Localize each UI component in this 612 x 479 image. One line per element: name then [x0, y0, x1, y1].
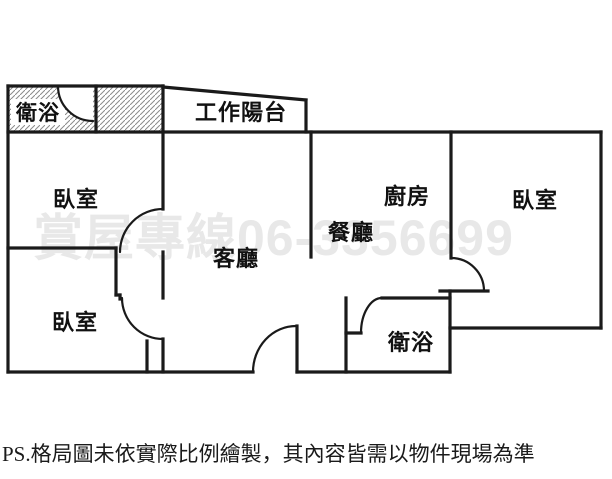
- floorplan-drawing: [0, 0, 612, 479]
- floorplan-page: 賞屋專線06-3356699: [0, 0, 612, 479]
- room-label-living-room: 客廳: [213, 241, 259, 273]
- room-label-bedroom-top-left: 臥室: [53, 182, 99, 214]
- room-label-bathroom-bottom: 衛浴: [388, 325, 434, 357]
- disclaimer-text: PS.格局圖未依實際比例繪製，其內容皆需以物件現場為準: [2, 438, 612, 468]
- room-label-work-balcony: 工作陽台: [195, 95, 287, 127]
- hatch-duct-cell: [97, 87, 163, 132]
- door-arc-bathroom-bottom: [361, 298, 382, 333]
- room-label-dining-room: 餐廳: [328, 215, 374, 247]
- room-label-bedroom-right: 臥室: [512, 183, 558, 215]
- door-arc-bedroom-bottom-left: [122, 298, 163, 339]
- door-arc-entrance: [253, 326, 296, 372]
- room-label-bedroom-bottom-left: 臥室: [52, 305, 98, 337]
- door-arc-bedroom-top-left: [120, 209, 163, 252]
- room-label-kitchen: 廚房: [384, 179, 430, 211]
- door-arc-bedroom-right: [451, 258, 484, 291]
- room-label-bathroom-top-left: 衛浴: [16, 97, 60, 127]
